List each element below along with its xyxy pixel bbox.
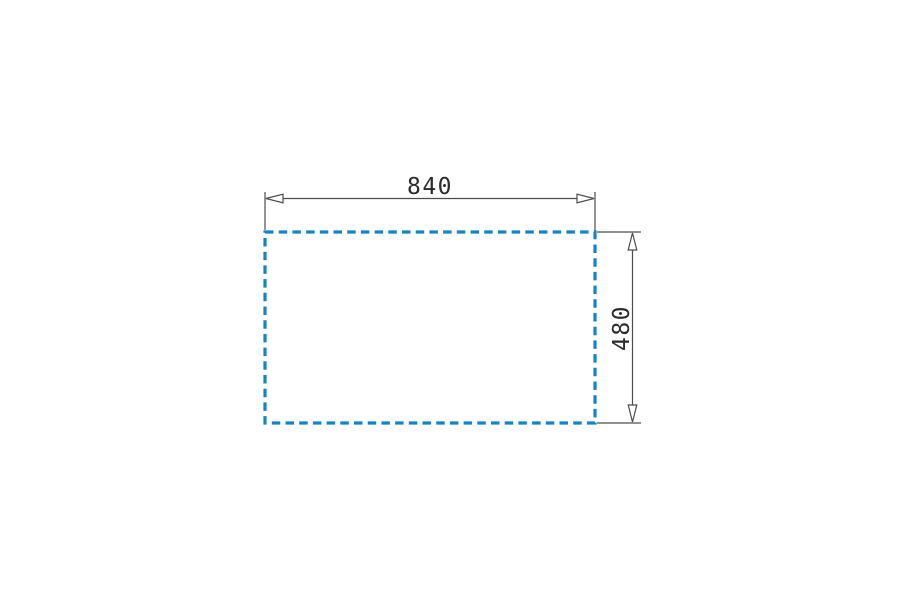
dimension-drawing: 840 480 [0, 0, 900, 600]
dashed-rectangle-outline [265, 232, 595, 423]
arrowhead-left-icon [266, 194, 283, 203]
drawing-canvas: 840 480 [0, 0, 900, 600]
arrowhead-up-icon [628, 233, 637, 250]
height-dimension-label: 480 [609, 305, 635, 351]
width-dimension-label: 840 [407, 174, 453, 200]
arrowhead-down-icon [628, 405, 637, 422]
arrowhead-right-icon [577, 194, 594, 203]
